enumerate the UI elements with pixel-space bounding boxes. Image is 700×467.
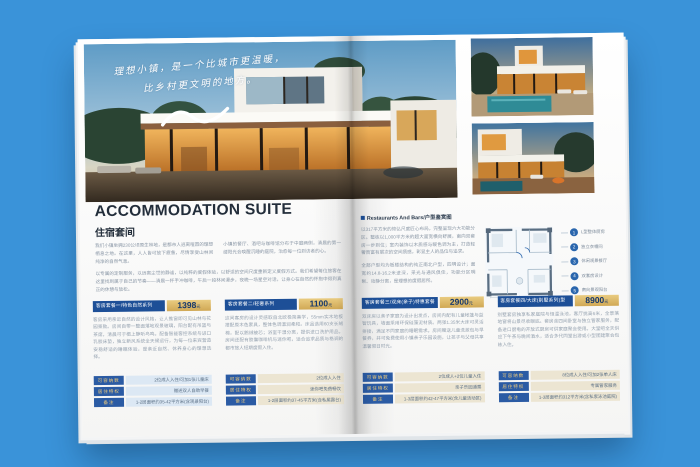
table-row: 居住特权 专属管家服务 [498,381,620,391]
page-subtitle: 住宿套间 [95,222,293,239]
right-packages: 客房套餐三/双床(亲子)特惠套餐 2900元 双床房以亲子家庭为设计出发点，房间… [362,295,620,404]
leader-line [562,275,569,276]
package-4-table: 可容纳数 8位成人入住/可加2张单人床 居住特权 专属管家服务 备注 1-3层面… [498,370,620,402]
package-2-description: 这间客房的设计灵感取自北欧极简美学，55mm实木地板搭配原木色家具，整体色调温润… [225,313,344,370]
row-label: 可容纳数 [94,376,124,385]
section-title-block: Restaurants And Bars/户型鉴赏图 [361,211,613,222]
table-row: 备注 1-3层面积约312平方米(含私家泳池庭院) [498,392,620,402]
row-label: 居住特权 [363,384,393,393]
section-title: Restaurants And Bars/户型鉴赏图 [367,213,452,222]
brochure-spread: 理想小镇，是一个比城市更温暖， 比乡村更文明的地方。 [78,33,629,438]
floorplan-legend: 1 L型整体厨房 2 独立衣帽间 3 休闲观景餐厅 [561,223,608,300]
legend-label: 休闲观景餐厅 [581,258,607,264]
row-value: 赠送双人自助早餐 [126,386,212,396]
section-paragraph-2: 全部户型均为板楼结构的纯正南北户型，四明设计；面宽约14.8-16.2米进深，采… [361,261,475,286]
floorplan-section: Restaurants And Bars/户型鉴赏图 以317平方米的恢弘尺度匠… [361,211,614,302]
leader-line [561,261,568,262]
intro-text: 我们小镇坐拥230公顷原生林地，是都市人逃离喧嚣的理想栖息之地。在这里，人人皆可… [95,239,342,294]
table-row: 可容纳数 2位成人+2位儿童入住 [363,371,485,381]
leader-line [561,232,568,233]
package-2-table: 可容纳数 2位成人入住 居住特权 迷你吧免费畅饮 备注 1-2层面积约37-45… [226,373,344,405]
row-label: 备注 [226,396,256,405]
floor-plan-drawing [484,224,555,301]
table-row: 居住特权 亲子乐园通票 [363,382,485,392]
page-title: ACCOMMODATION SUITE [95,201,293,221]
table-row: 可容纳数 2位成人入住/可加1张儿童床 [94,375,212,385]
table-row: 可容纳数 8位成人入住/可加2张单人床 [498,370,620,380]
row-label: 可容纳数 [226,374,256,383]
package-3-description: 双床房以亲子家庭为设计出发点，房间内配有儿童帐篷与益智玩具，墙面采用环保硅藻泥材… [362,311,484,368]
row-label: 备注 [498,393,528,402]
row-label: 可容纳数 [498,371,528,380]
package-2-price-badge: 1100元 [299,298,343,310]
section-paragraph-1: 以317平方米的恢弘尺度匠心布局，完整呈现六大功能分区。整栋以1,000平方米的… [361,225,475,258]
package-card-3: 客房套餐三/双床(亲子)特惠套餐 2900元 双床房以亲子家庭为设计出发点，房间… [362,296,485,403]
package-1-price-badge: 1398元 [167,300,211,312]
table-row: 可容纳数 2位成人入住 [226,373,344,383]
legend-item: 5 南向景观阳台 [562,286,608,295]
leader-line [562,290,569,291]
package-1-unit: 元 [196,304,200,309]
legend-number-icon: 1 [570,228,578,236]
package-4-unit: 元 [604,299,608,304]
package-1-description: 客房采用亲近自然的设计风格，让人推窗即可见山林与花园景致。房间自带一整面落地观景… [93,315,212,372]
row-label: 居住特权 [94,387,124,396]
legend-label: 独立衣帽间 [581,243,603,249]
legend-number-icon: 2 [570,243,578,251]
row-label: 备注 [94,398,124,407]
row-value: 2位成人+2位儿童入住 [395,371,485,381]
row-label: 备注 [363,395,393,404]
row-value: 8位成人入住/可加2张单人床 [530,370,620,380]
row-value: 2位成人入住/可加1张儿童床 [126,375,212,385]
package-card-2: 客房套餐二/轻奢系列 1100元 这间客房的设计灵感取自北欧极简美学，55mm实… [225,298,344,405]
row-value: 1-2层面积约35-42平方米(含观景阳台) [126,397,212,407]
package-1-table: 可容纳数 2位成人入住/可加1张儿童床 居住特权 赠送双人自助早餐 备注 1-2… [94,375,212,407]
pool-villa-photo-1 [471,37,594,116]
hero-villa-photo: 理想小镇，是一个比城市更温暖， 比乡村更文明的地方。 [84,40,458,203]
intro-column-2: 小镇的餐厅、酒吧与咖啡馆分布于中庭两侧，清晨的第一缕阳光会唤醒沉睡的庭院，治愈每… [223,239,341,264]
legend-label: L型整体厨房 [581,229,605,235]
row-value: 1-3层面积约312平方米(含私家泳池庭院) [530,392,620,402]
intro-paragraph: 以专属的定制服务，以远离尘世的静谧，以纯粹的度假体验，以舒适的空间尺度重新定义度… [95,268,341,294]
package-3-price: 2900 [450,297,469,307]
legend-item: 4 双套房设计 [561,271,607,280]
legend-item: 3 休闲观景餐厅 [561,257,607,266]
package-2-unit: 元 [328,302,332,307]
package-3-price-badge: 2900元 [439,296,483,308]
legend-number-icon: 5 [571,286,579,294]
pool-villa-photo-2 [472,122,595,194]
legend-item: 1 L型整体厨房 [561,228,607,237]
legend-item: 2 独立衣帽间 [561,242,607,251]
row-value: 1-2层面积约37-45平方米(含私属露台) [258,395,344,405]
package-3-name: 客房套餐三/双床(亲子)特惠套餐 [362,297,438,309]
legend-number-icon: 4 [570,272,578,280]
row-value: 亲子乐园通票 [395,382,485,392]
legend-label: 双套房设计 [581,272,603,278]
row-value: 2位成人入住 [258,373,344,383]
table-row: 居住特权 迷你吧免费畅饮 [226,384,344,394]
package-4-price: 8900 [585,295,604,305]
table-row: 居住特权 赠送双人自助早餐 [94,386,212,396]
package-3-table: 可容纳数 2位成人+2位儿童入住 居住特权 亲子乐园通票 备注 1-3层面积约4… [363,371,485,403]
package-3-unit: 元 [469,301,473,306]
package-1-name: 客房套餐一/特色自然系列 [93,300,165,312]
row-value: 迷你吧免费畅饮 [258,384,344,394]
row-label: 居住特权 [498,382,528,391]
square-bullet-icon [361,216,365,220]
page-title-block: ACCOMMODATION SUITE 住宿套间 [95,201,293,239]
left-packages: 客房套餐一/特色自然系列 1398元 客房采用亲近自然的设计风格，让人推窗即可见… [93,298,344,407]
row-label: 可容纳数 [363,373,393,382]
package-2-price: 1100 [310,298,329,308]
table-row: 备注 1-2层面积约35-42平方米(含观景阳台) [94,397,212,407]
row-value: 专属管家服务 [530,381,620,391]
package-4-name: 客房套餐四/大床(别墅系列)型 [497,295,573,307]
pool-villa-illustration-1 [471,37,594,116]
table-row: 备注 1-2层面积约37-45平方米(含私属露台) [226,395,344,405]
legend-label: 南向景观阳台 [582,287,608,293]
intro-column-1: 我们小镇坐拥230公顷原生林地，是都市人逃离喧嚣的理想栖息之地。在这里，人人皆可… [95,241,213,266]
table-row: 备注 1-3层面积约42-47平方米(含儿童活动区) [363,393,485,403]
row-value: 1-3层面积约42-47平方米(含儿童活动区) [395,393,485,403]
row-label: 居住特权 [226,385,256,394]
package-card-4: 客房套餐四/大床(别墅系列)型 8900元 别墅套房独享私家庭院与恒温泳池，客厅… [497,295,620,402]
legend-number-icon: 3 [570,257,578,265]
package-1-price: 1398 [177,300,196,310]
pool-villa-illustration-2 [472,122,595,194]
package-4-description: 别墅套房独享私家庭院与恒温泳池，客厅挑高6米，全景落地窗将山景尽收眼底。套房含四… [497,310,619,367]
leader-line [561,246,568,247]
package-card-1: 客房套餐一/特色自然系列 1398元 客房采用亲近自然的设计风格，让人推窗即可见… [93,300,212,407]
package-2-name: 客房套餐二/轻奢系列 [225,299,297,311]
package-4-price-badge: 8900元 [575,295,619,307]
section-paragraphs: 以317平方米的恢弘尺度匠心布局，完整呈现六大功能分区。整栋以1,000平方米的… [361,225,476,302]
